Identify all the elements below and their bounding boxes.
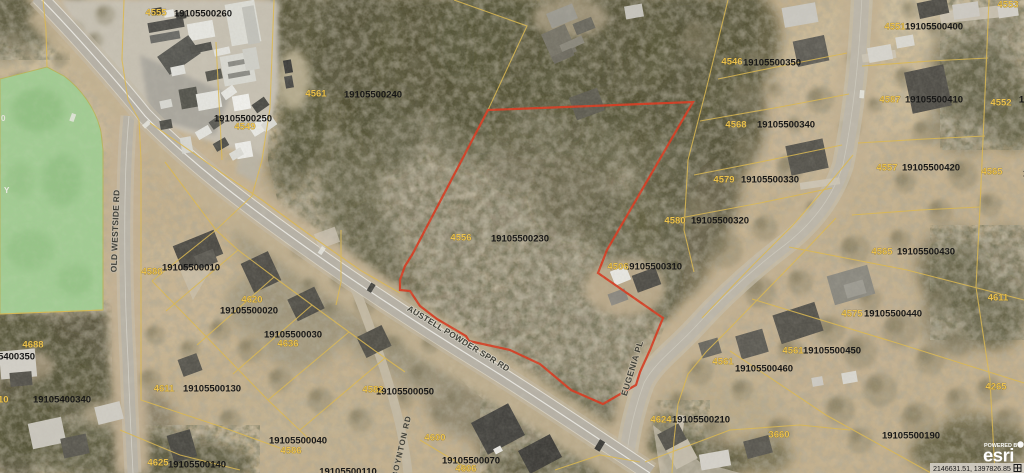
svg-text:2146631.51, 1397826.85: 2146631.51, 1397826.85 [933,464,1011,473]
svg-text:esri: esri [983,445,1014,466]
